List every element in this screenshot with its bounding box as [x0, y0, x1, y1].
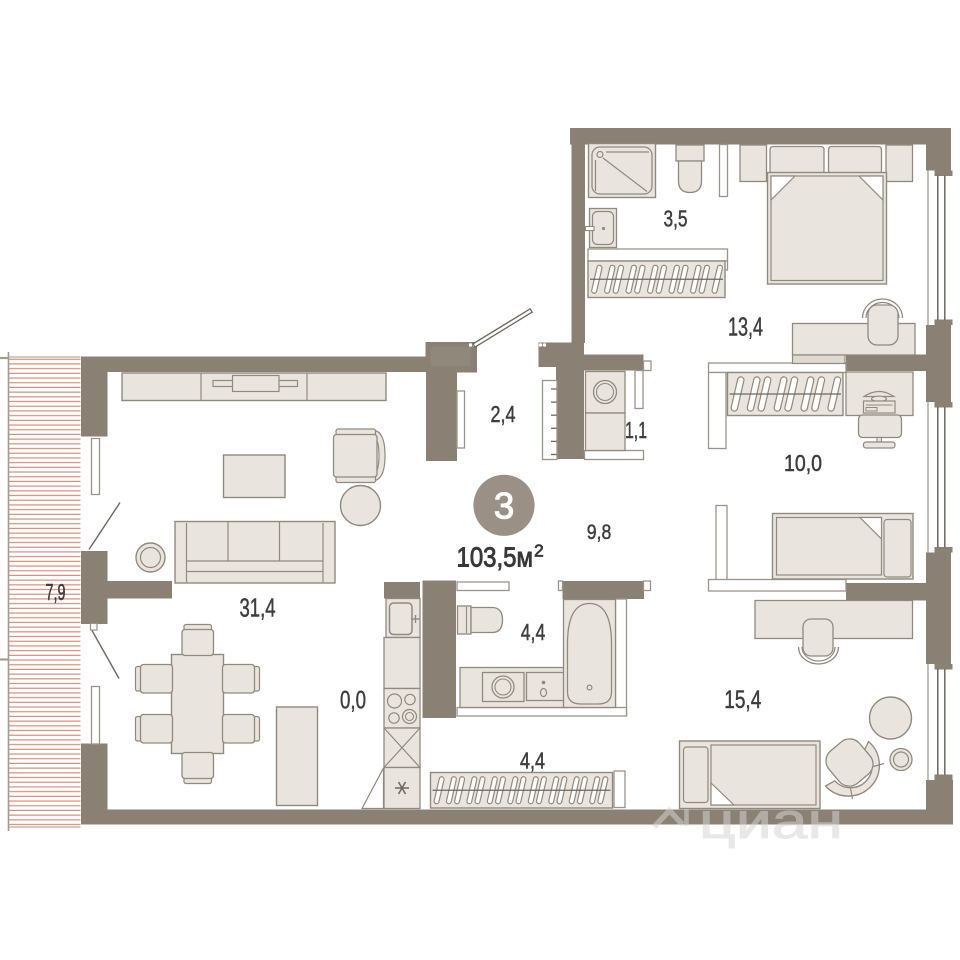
svg-text:31,4: 31,4 [240, 593, 276, 623]
svg-text:3: 3 [494, 486, 515, 527]
svg-text:4,4: 4,4 [520, 748, 545, 774]
svg-text:0,0: 0,0 [340, 687, 366, 715]
svg-text:15,4: 15,4 [724, 686, 761, 714]
svg-text:2,4: 2,4 [491, 401, 516, 427]
svg-text:2: 2 [534, 541, 544, 561]
svg-text:4,4: 4,4 [521, 619, 546, 645]
svg-text:циан: циан [699, 793, 843, 849]
svg-text:103,5м: 103,5м [457, 542, 534, 573]
svg-text:1,1: 1,1 [625, 417, 647, 443]
svg-text:9,8: 9,8 [587, 520, 612, 544]
svg-text:3,5: 3,5 [664, 206, 688, 232]
svg-text:10,0: 10,0 [784, 450, 822, 476]
svg-text:7,9: 7,9 [46, 579, 66, 605]
svg-text:13,4: 13,4 [728, 312, 763, 342]
